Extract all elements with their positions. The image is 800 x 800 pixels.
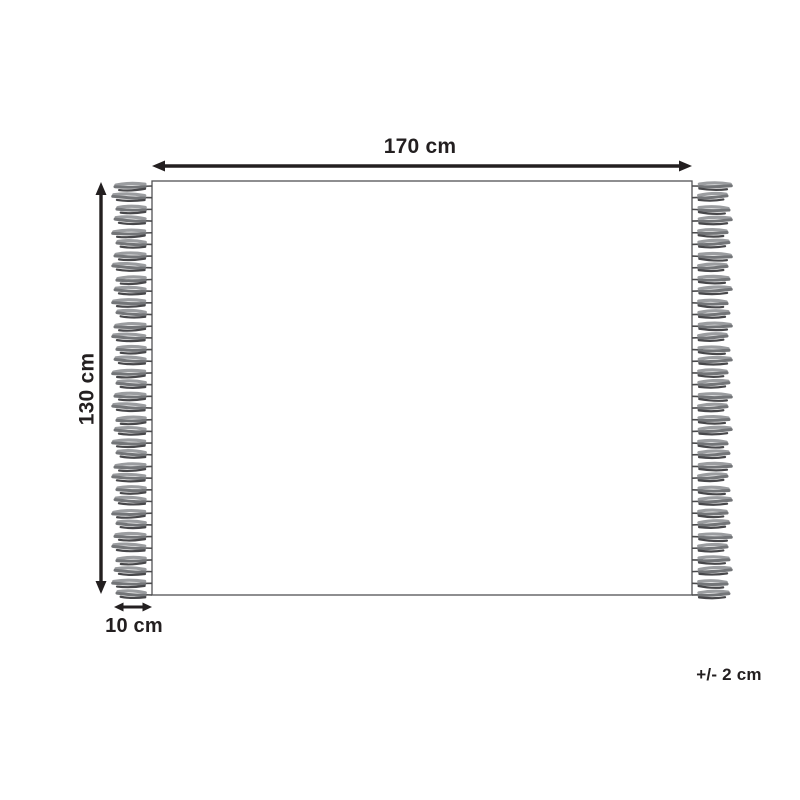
tassel [692,346,729,354]
fringe-right [692,183,731,599]
tassel [115,497,152,505]
tassel [117,240,152,248]
tassel [692,300,727,308]
tassel [692,310,729,318]
tassel [117,557,152,565]
tolerance-label: +/- 2 cm [696,666,761,683]
rug-outline [152,181,692,595]
tassel [113,334,152,342]
fringe-dimension-label: 10 cm [105,616,163,636]
tassel [692,416,729,423]
tassel [113,544,152,552]
tassel [117,486,152,493]
tassel [115,393,152,400]
tassel [692,591,729,599]
tassel [113,263,152,271]
tassel [115,533,152,540]
tassel [117,276,152,284]
tassel [692,333,727,341]
tassel [113,194,152,202]
width-dimension-arrow [152,161,692,172]
tassel [692,370,727,377]
tassel [692,206,729,214]
tassel [692,253,731,261]
tassel [692,217,731,225]
tassel [692,473,727,481]
tassel [692,486,729,494]
tassel [117,310,152,318]
tassel [117,521,152,529]
tassel [692,580,727,588]
fringe-dimension-arrow [114,603,152,612]
tassel [113,474,152,482]
tassel [692,404,727,412]
tassel [113,440,152,447]
tassel [117,381,152,389]
tassel [115,357,152,365]
tassel [113,510,152,518]
tassel [113,403,152,411]
tassel [115,463,152,471]
tassel [115,183,152,191]
tassel [692,323,731,330]
tassel [692,276,729,283]
tassel [692,451,729,459]
tassel [115,568,152,576]
tassel [692,357,731,365]
tassel [113,370,152,378]
tassel [113,229,152,237]
tassel [115,427,152,435]
tassel [692,193,727,201]
tassel [115,216,152,224]
tassel [113,580,152,587]
tassel [692,497,731,505]
tassel [117,206,152,213]
tassel [692,567,731,575]
tassel [692,264,727,272]
tassel [117,346,152,353]
fringe-left [113,183,152,599]
tassel [692,393,731,401]
tassel [117,450,152,458]
width-dimension-label: 170 cm [384,136,456,157]
tassel [115,323,152,331]
tassel [117,590,152,598]
tassel [117,416,152,424]
tassel [692,427,731,435]
height-dimension-label: 130 cm [77,353,98,425]
tassel [692,229,727,236]
rug-outline-drawing [0,0,800,800]
tassel [692,183,731,190]
tassel [692,380,729,388]
tassel [115,253,152,260]
tassel [692,510,727,517]
tassel [692,520,729,528]
tassel [692,533,731,541]
tassel [692,287,731,295]
tassel [692,463,731,470]
tassel [692,544,727,552]
rug-dimension-diagram: 170 cm 130 cm 10 cm +/- 2 cm [0,0,800,800]
tassel [692,557,729,564]
tassel [115,287,152,295]
tassel [692,440,727,448]
tassel [113,300,152,307]
tassel [692,240,729,248]
